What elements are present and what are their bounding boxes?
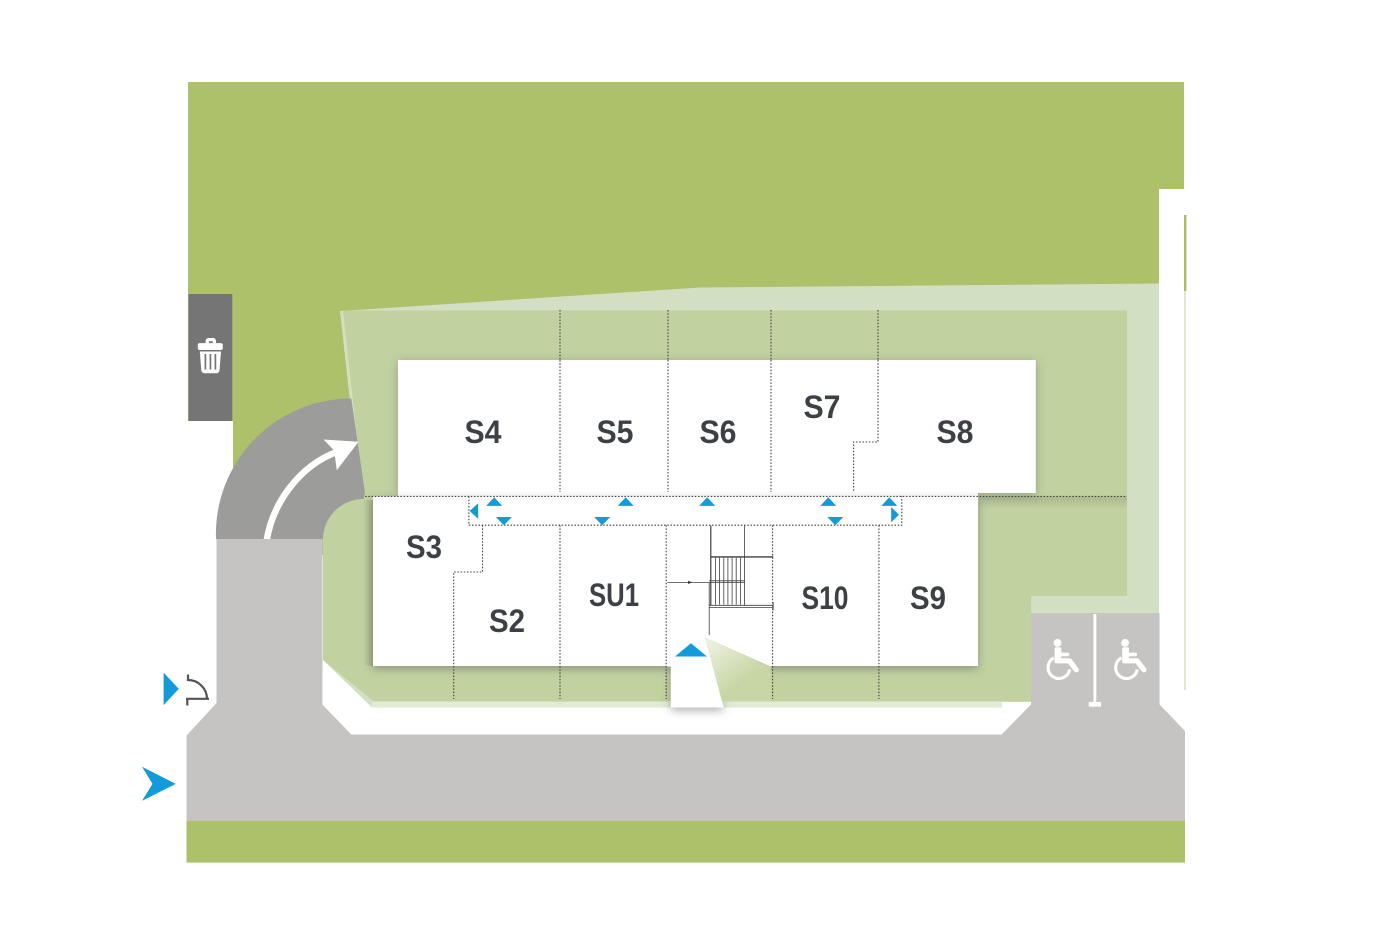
svg-text:S6: S6: [700, 414, 737, 450]
svg-text:S9: S9: [910, 580, 946, 616]
svg-text:S5: S5: [597, 414, 634, 450]
svg-text:S8: S8: [937, 414, 974, 450]
svg-text:S3: S3: [406, 529, 442, 565]
svg-text:S7: S7: [804, 389, 841, 425]
svg-text:S4: S4: [465, 414, 502, 450]
svg-text:S10: S10: [802, 580, 849, 616]
svg-text:S2: S2: [489, 603, 525, 639]
svg-text:SU1: SU1: [589, 577, 639, 613]
